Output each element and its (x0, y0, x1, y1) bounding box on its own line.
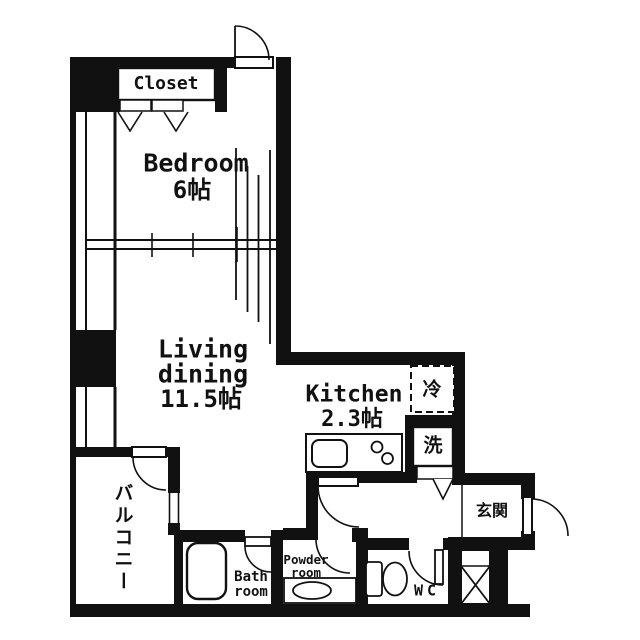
washer-fold-mark (433, 479, 453, 499)
balcony-label: バルコニー (113, 483, 132, 593)
wc-label: WC (414, 584, 440, 599)
toilet-tank (366, 562, 382, 596)
bath-label-line2: room (234, 585, 268, 599)
closet-fold-mark (118, 112, 142, 131)
wall (276, 57, 291, 365)
vanity-sink (293, 582, 331, 599)
washer-label: 洗 (423, 437, 442, 456)
closet-door-panel (120, 100, 151, 111)
stove-burner (372, 442, 383, 453)
door-arc-hallway (318, 486, 359, 527)
living-label-line2: dining (158, 362, 248, 387)
wall (215, 68, 227, 112)
kitchen-size: 2.3帖 (321, 409, 383, 431)
wall (352, 528, 368, 542)
kitchen-sink (312, 440, 347, 467)
wall (443, 538, 452, 550)
wall (174, 530, 183, 604)
bath-label-line1: Bath (234, 570, 268, 584)
wall (70, 447, 132, 457)
bedroom-label: Bedroom (143, 151, 248, 176)
wall (70, 57, 76, 617)
wall (276, 352, 465, 365)
door-arc-balcony (133, 457, 166, 490)
door-leaf-balcony (132, 447, 166, 457)
wall (120, 57, 235, 68)
washer-door-panel (417, 466, 453, 479)
door-arc-entrance (531, 499, 568, 536)
wall (271, 530, 283, 604)
toilet-bowl (383, 563, 407, 596)
wall (174, 530, 245, 542)
entrance-label: 玄関 (476, 503, 508, 519)
windows (86, 112, 115, 447)
door-arc-bedroom (235, 26, 269, 60)
powder-label-line2: room (291, 567, 321, 580)
door-leaf-entrance (523, 497, 532, 535)
wall (283, 528, 318, 540)
wall (448, 537, 535, 550)
closet-door-panel (152, 100, 183, 111)
wall (70, 604, 530, 617)
wall (405, 415, 455, 427)
wall (166, 447, 180, 457)
wall (521, 473, 535, 499)
bathtub (187, 543, 226, 599)
closet-fold-mark (164, 112, 188, 131)
floor-plan-drawing (0, 0, 640, 640)
wall (448, 550, 462, 604)
door-leaf-wc (435, 550, 443, 584)
wall (368, 538, 409, 550)
wall (70, 57, 120, 112)
walls (70, 57, 535, 617)
refrigerator-label: 冷 (422, 381, 441, 400)
door-leaf-hallway (318, 477, 358, 486)
door-leaf-bedroom (235, 57, 273, 68)
bedroom-size: 6帖 (173, 178, 211, 202)
door-leaf-bath (245, 537, 271, 546)
closet-label: Closet (133, 75, 198, 93)
kitchen-label: Kitchen (306, 384, 403, 407)
pipe-shaft (461, 550, 490, 604)
wall (306, 472, 318, 533)
living-label-line1: Living (158, 337, 248, 362)
living-size: 11.5帖 (160, 387, 242, 411)
wall (76, 330, 116, 387)
floor-plan: Closet Bedroom 6帖 Living dining 11.5帖 Ki… (0, 0, 640, 640)
stove-burner (382, 453, 393, 464)
